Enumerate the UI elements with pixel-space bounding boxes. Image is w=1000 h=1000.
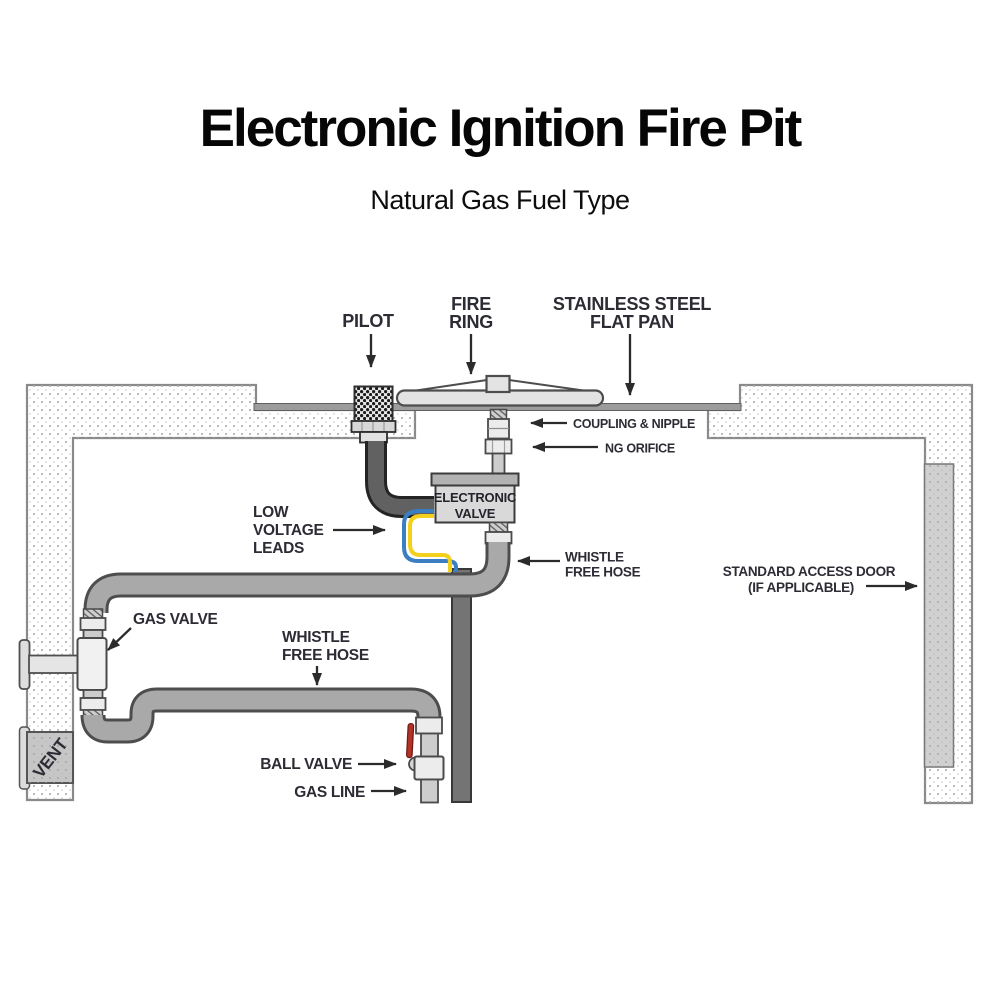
gas-valve-arrow: [108, 628, 131, 650]
electronic-valve-cap: [432, 474, 519, 486]
flat-pan-label-line2: FLAT PAN: [590, 312, 674, 332]
fire-ring-hub: [487, 376, 510, 392]
coupling-nipple-label: COUPLING & NIPPLE: [573, 417, 695, 431]
whistle-hose-upper-label-line1: WHISTLE: [565, 550, 624, 565]
whistle-free-hose-lower: [93, 700, 429, 731]
ball-valve-label: BALL VALVE: [260, 756, 352, 773]
access-door-label-line1: STANDARD ACCESS DOOR: [723, 564, 896, 579]
gas-valve-label: GAS VALVE: [133, 611, 218, 628]
fire-ring-label-line2: RING: [449, 312, 493, 332]
electronic-valve-label-line2: VALVE: [455, 506, 496, 521]
ng-orifice-fitting: [486, 440, 512, 454]
pilot-label: PILOT: [342, 311, 394, 331]
ball-valve-body: [415, 757, 444, 780]
fire-pit-diagram-page: Electronic Ignition Fire Pit Natural Gas…: [0, 0, 1000, 1000]
callouts: PILOT FIRE RING STAINLESS STEEL FLAT PAN…: [108, 294, 917, 801]
vent-block: VENT: [20, 727, 74, 789]
gas-valve-body: [78, 638, 107, 690]
electronic-valve-label-line1: ELECTRONIC: [434, 490, 517, 505]
pilot-head: [355, 387, 393, 422]
wire-conduit: [452, 569, 471, 802]
fire-ring-label-line1: FIRE: [451, 294, 491, 314]
low-voltage-label-line3: LEADS: [253, 540, 304, 557]
ball-valve-lever: [406, 723, 413, 757]
whistle-hose-lower-label-line1: WHISTLE: [282, 629, 350, 646]
gas-line-pipe: [421, 780, 438, 803]
coupling-and-nipple: [488, 410, 509, 439]
whistle-hose-upper-label-line2: FREE HOSE: [565, 565, 641, 580]
fire-ring: [397, 376, 603, 406]
gas-valve-key-plate: [20, 640, 30, 689]
access-door-panel: [925, 464, 954, 767]
pilot-base: [360, 432, 387, 443]
gas-valve-key-bar: [29, 656, 79, 674]
gas-line-label: GAS LINE: [294, 784, 365, 801]
whistle-hose-lower-label-line2: FREE HOSE: [282, 647, 369, 664]
access-door-label-line2: (IF APPLICABLE): [748, 580, 854, 595]
diagram-canvas: VENT: [0, 0, 1000, 1000]
ng-orifice-label: NG ORIFICE: [605, 442, 675, 456]
electronic-valve: ELECTRONIC VALVE: [432, 474, 519, 544]
pilot-hose: [376, 441, 434, 507]
flat-pan-label-line1: STAINLESS STEEL: [553, 294, 711, 314]
low-voltage-label-line1: LOW: [253, 504, 289, 521]
ball-valve-assembly: [406, 718, 443, 803]
valve-riser-pipe: [493, 454, 505, 475]
low-voltage-label-line2: VOLTAGE: [253, 522, 324, 539]
